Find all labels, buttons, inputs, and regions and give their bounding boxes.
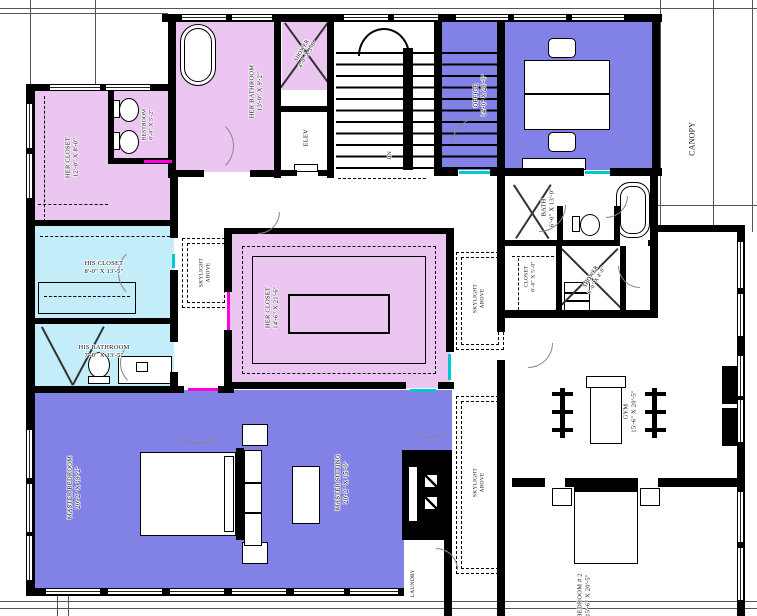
wall	[170, 176, 178, 238]
office-desk	[524, 60, 610, 130]
floor-plan: HER CLOSET12'-0" X 8'-0" RESTROOM6'-0" X…	[0, 0, 757, 616]
wall	[434, 168, 458, 176]
window	[27, 104, 32, 148]
window	[232, 589, 286, 594]
wall	[610, 168, 662, 176]
window	[572, 15, 624, 20]
room-label-closet: CLOSET6'-0" X 5'-0"	[524, 247, 537, 307]
room-label-her-bathroom: HER BATHROOM13'-0" X 9'-2"	[249, 50, 264, 134]
gym-equipment-rack	[552, 392, 573, 396]
wall	[652, 14, 660, 176]
grid-line	[30, 0, 31, 86]
tv-label: TV	[410, 474, 418, 502]
fireplace-box	[424, 496, 438, 510]
window	[738, 492, 743, 542]
room-label-restroom: RESTROOM6'-0" X 5'-2"	[142, 95, 155, 155]
room-label-bath: BATH6'-0" X 13'-0"	[541, 174, 556, 242]
window	[738, 548, 743, 600]
room-label-his-closet: HIS CLOSET8'-0" X 13'-5"	[58, 260, 150, 275]
window	[394, 15, 438, 20]
wall	[224, 382, 406, 389]
toilet-bowl	[580, 214, 600, 236]
wall	[250, 170, 281, 177]
wall	[497, 176, 505, 316]
wall	[497, 310, 658, 318]
window	[27, 536, 32, 580]
nightstand	[552, 488, 572, 506]
door-threshold-magenta	[144, 160, 172, 163]
room-label-elevator: ELEV	[302, 124, 310, 152]
wall	[438, 382, 454, 389]
bathtub	[180, 24, 216, 86]
master-bed	[140, 452, 236, 536]
wall	[512, 478, 545, 487]
sofa-cushion-line	[244, 512, 262, 514]
closet-island	[288, 294, 390, 334]
wall	[224, 228, 232, 292]
bed-headboard	[574, 486, 638, 492]
gym-equipment-rack	[552, 428, 573, 432]
door-threshold-magenta	[227, 292, 230, 330]
grid-line	[655, 205, 757, 206]
bed-headboard	[236, 448, 244, 540]
grid-line	[713, 0, 714, 232]
room-label-her-closet-main: HER CLOSET14'-6" X 21'-6"	[265, 262, 280, 354]
room-label-shower-lower: SHOWER6'-0" X 4'-0"	[572, 248, 615, 310]
stairs-direction-label: DN	[387, 143, 394, 167]
grid-line	[0, 8, 757, 9]
fireplace-box	[424, 474, 438, 488]
window	[738, 294, 743, 336]
wall	[446, 228, 454, 352]
wall	[490, 168, 584, 176]
window	[182, 15, 226, 20]
stair-guard-dashed	[338, 178, 426, 179]
grid-line	[0, 13, 168, 14]
wall	[434, 14, 442, 176]
window	[738, 400, 743, 442]
column	[722, 366, 737, 404]
closet-rod-dashed	[40, 236, 170, 237]
wall	[556, 246, 562, 312]
toilet-tank	[88, 376, 110, 384]
door-threshold-cyan	[459, 171, 490, 174]
skylight-label: SKYLIGHTABOVE	[473, 276, 486, 322]
wall	[655, 225, 745, 232]
room-label-gym: GYM15'-6" X 20'-5"	[623, 370, 638, 454]
wall	[224, 330, 232, 388]
wall	[274, 14, 281, 178]
window	[50, 85, 100, 90]
window	[344, 15, 388, 20]
window	[27, 154, 32, 198]
door-arc	[501, 167, 577, 243]
window	[27, 430, 32, 478]
room-label-her-closet-top: HER CLOSET12'-0" X 8'-0"	[65, 118, 80, 198]
wall	[26, 318, 178, 324]
gym-equipment-rack	[552, 410, 573, 414]
room-label-laundry: LAUNDRY	[410, 555, 417, 611]
window	[108, 589, 162, 594]
closet-rod-dashed	[38, 204, 108, 205]
wall	[658, 478, 745, 487]
stair-stringer	[403, 48, 413, 170]
door-threshold-cyan	[448, 354, 451, 380]
window	[738, 242, 743, 288]
skylight-label: SKYLIGHTABOVE	[199, 250, 212, 296]
window	[232, 15, 272, 20]
toilet-bowl	[119, 98, 139, 122]
window	[46, 589, 100, 594]
window	[456, 15, 508, 20]
wall	[497, 360, 505, 616]
nightstand	[640, 488, 660, 506]
bed-pillows	[224, 456, 234, 532]
room-label-bedroom-2: BEDROOM # 215'-6" X 20'-5"	[577, 548, 592, 616]
grid-line	[95, 0, 96, 86]
closet-rod-dashed	[44, 96, 45, 222]
sofa	[244, 450, 262, 546]
elevator-door	[294, 164, 318, 172]
wall	[108, 88, 114, 164]
window	[170, 589, 224, 594]
wall	[168, 14, 176, 178]
gym-equipment-rack	[645, 392, 666, 396]
closet-rod-dashed	[518, 258, 519, 310]
grid-line	[752, 0, 753, 232]
skylight-label: SKYLIGHTABOVE	[473, 460, 486, 506]
door-threshold-cyan	[172, 254, 175, 268]
window	[350, 589, 398, 594]
bathtub-inner	[184, 28, 212, 82]
closet-rod-dashed	[44, 296, 130, 297]
toilet-tank	[572, 216, 580, 232]
wall	[281, 170, 297, 176]
office-chair	[548, 38, 576, 58]
ottoman	[292, 466, 320, 524]
window	[27, 484, 32, 532]
room-label-master-sitting: MASTER SITTING20'-2" X 15'-0"	[335, 435, 350, 531]
grid-line	[0, 608, 757, 609]
wall	[26, 84, 176, 91]
canopy-label: CANOPY	[688, 107, 696, 171]
grid-line	[660, 0, 661, 232]
gym-bench	[590, 384, 622, 444]
column	[722, 408, 737, 446]
sofa-cushion-line	[244, 482, 262, 484]
wall	[327, 14, 334, 178]
window	[738, 356, 743, 396]
room-label-master-bedroom: MASTER BEDROOM20'-2" X 19'-2"	[67, 440, 82, 536]
wall	[170, 270, 178, 342]
room-label-his-bathroom: HIS BATHROOM7'-0" X 13'-5"	[58, 344, 150, 359]
window	[514, 15, 566, 20]
toilet-bowl	[119, 130, 139, 154]
wall	[26, 220, 178, 226]
nightstand	[242, 424, 268, 446]
window	[294, 589, 344, 594]
gym-equipment-rack	[645, 428, 666, 432]
wall	[497, 316, 505, 332]
room-label-office: OFFICE14'-0" X 20'-0"	[473, 54, 488, 138]
gym-equipment-rack	[645, 410, 666, 414]
wall	[281, 106, 334, 112]
wall	[26, 386, 184, 393]
door-arc	[178, 118, 234, 174]
door-arc	[172, 390, 226, 444]
wall	[318, 170, 334, 176]
office-chair	[548, 132, 576, 152]
gym-bench-head	[586, 376, 626, 388]
window	[106, 85, 150, 90]
door-arc	[406, 388, 456, 438]
grid-line	[0, 601, 757, 602]
office-desk-divider	[524, 93, 610, 95]
